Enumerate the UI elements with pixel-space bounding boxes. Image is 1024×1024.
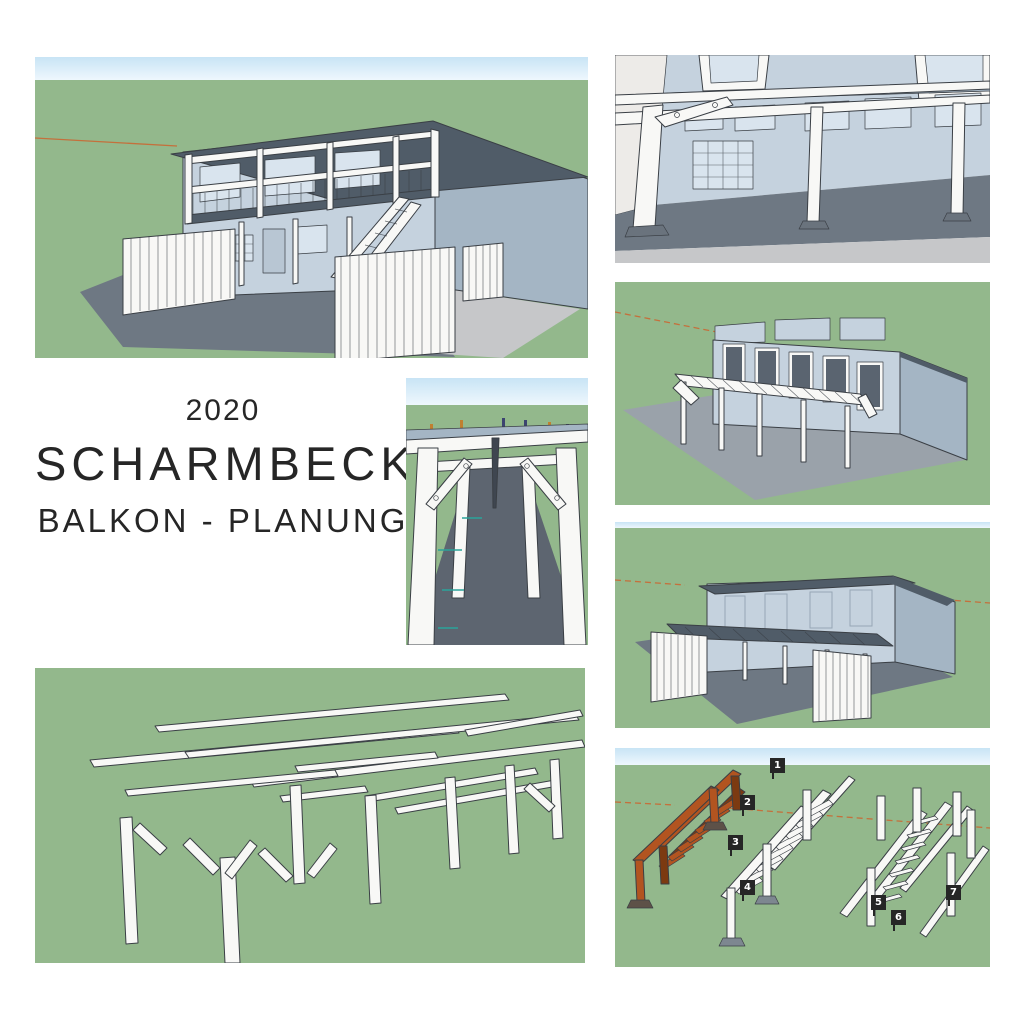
render-frame-perspective	[406, 378, 588, 645]
stair-tag-5: 5	[871, 895, 886, 910]
building-frame-drawing	[615, 282, 990, 505]
stair-parts-drawing	[615, 748, 990, 967]
title-block: 2020 SCHARMBECK BALKON - PLANUNG	[35, 396, 411, 537]
stair-tag-1: 1	[770, 758, 785, 773]
frame-closeup-drawing	[615, 55, 990, 263]
title-name: SCHARMBECK	[35, 440, 411, 487]
building-overview-drawing	[35, 57, 588, 358]
building-balcony-drawing	[615, 522, 990, 728]
collage-canvas: { "title": { "year": "2020", "name": "SC…	[0, 0, 1024, 1024]
render-building-overview	[35, 57, 588, 358]
interior-wall-tops	[715, 318, 885, 344]
render-stair-parts: 1 2 3 4 5 6 7	[615, 748, 990, 967]
frame-perspective-drawing	[406, 378, 588, 645]
stair-tag-4: 4	[740, 880, 755, 895]
stair-tag-6: 6	[891, 910, 906, 925]
stair-tag-3: 3	[728, 835, 743, 850]
stair-tag-7: 7	[946, 885, 961, 900]
stair-tag-2: 2	[740, 795, 755, 810]
exploded-stair-parts	[840, 788, 989, 937]
axis-line	[615, 580, 685, 585]
render-exploded-pergola	[35, 668, 585, 963]
render-building-frame	[615, 282, 990, 505]
axis-line	[35, 138, 177, 146]
render-building-balcony	[615, 522, 990, 728]
title-subtitle: BALKON - PLANUNG	[35, 504, 411, 537]
render-frame-closeup	[615, 55, 990, 263]
title-year: 2020	[35, 396, 411, 426]
axis-line	[615, 312, 727, 334]
exploded-pergola-drawing	[35, 668, 585, 963]
